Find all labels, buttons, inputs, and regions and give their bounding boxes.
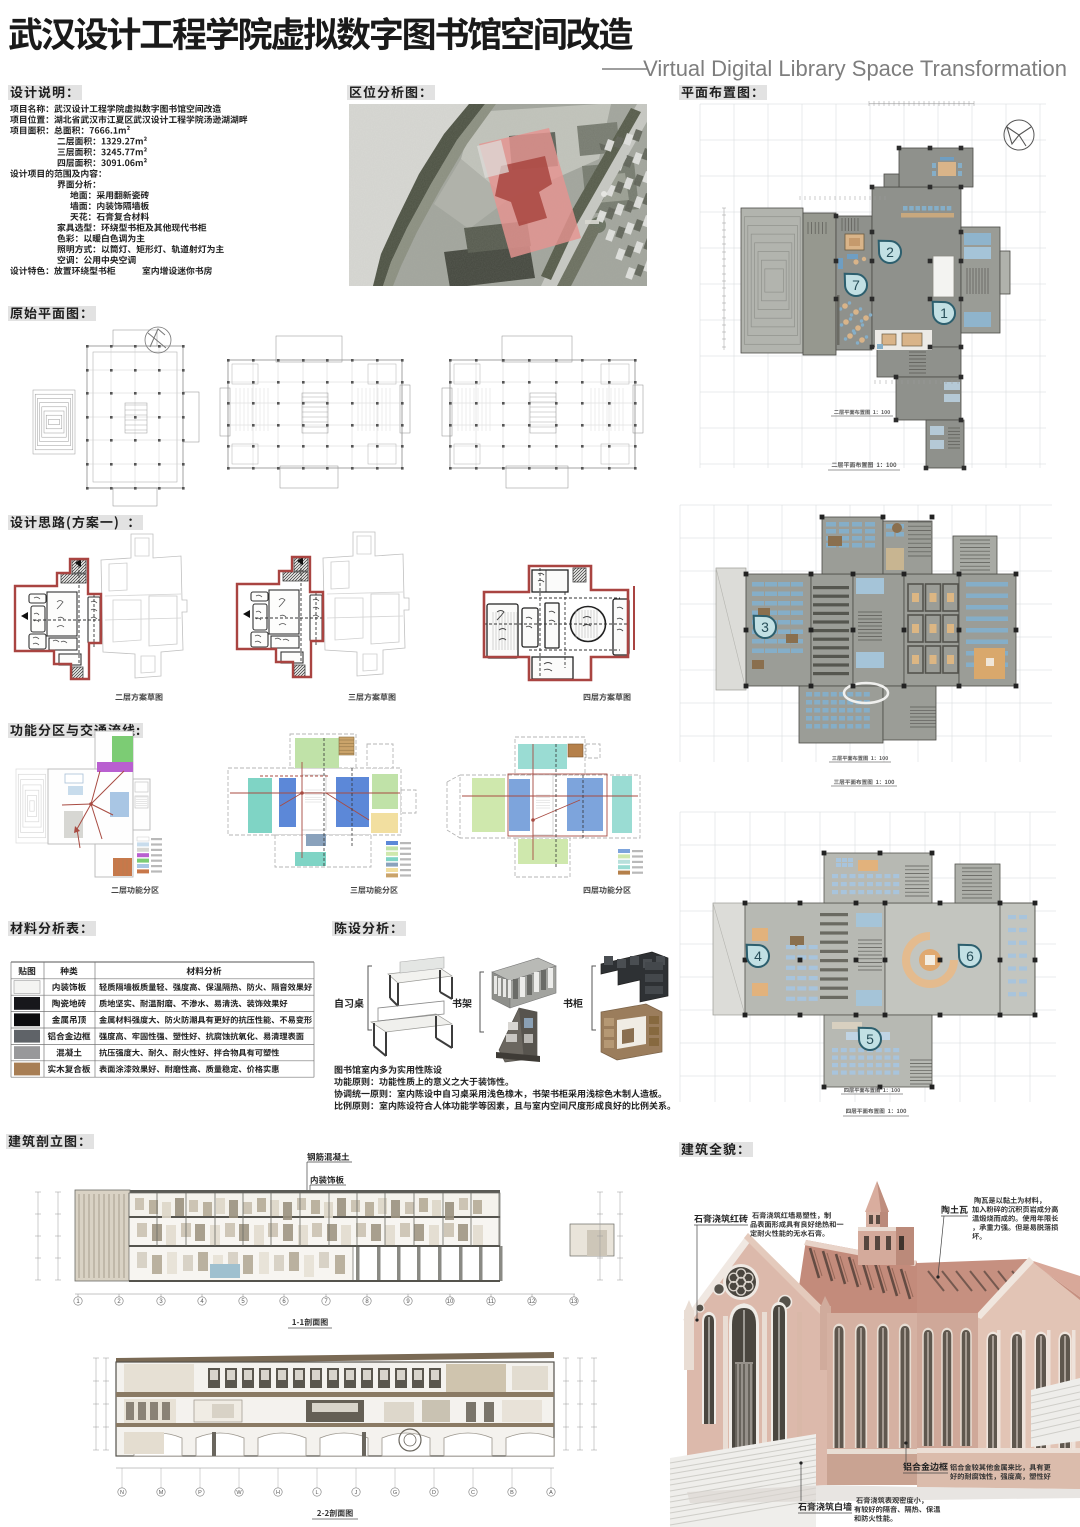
svg-text:B: B [510, 1490, 514, 1496]
svg-text:8: 8 [365, 1299, 369, 1305]
svg-text:3: 3 [761, 619, 769, 635]
svg-text:P: P [198, 1490, 202, 1496]
svg-text:M: M [159, 1490, 164, 1496]
svg-text:2: 2 [886, 244, 894, 260]
svg-text:6: 6 [966, 948, 974, 964]
svg-text:G: G [393, 1490, 397, 1496]
svg-text:9: 9 [406, 1299, 410, 1305]
svg-text:H: H [276, 1490, 280, 1496]
svg-text:2: 2 [117, 1299, 121, 1305]
svg-text:N: N [120, 1490, 124, 1496]
svg-text:7: 7 [324, 1299, 328, 1305]
svg-text:12: 12 [529, 1299, 536, 1305]
svg-text:L: L [315, 1490, 318, 1496]
svg-text:C: C [471, 1490, 475, 1496]
svg-text:Virtual Digital Library Space: Virtual Digital Library Space Transforma… [643, 56, 1067, 81]
svg-text:J: J [355, 1490, 358, 1496]
svg-text:10: 10 [447, 1299, 454, 1305]
svg-text:7: 7 [852, 277, 860, 293]
svg-text:A: A [549, 1490, 553, 1496]
svg-text:13: 13 [571, 1299, 578, 1305]
svg-text:3: 3 [159, 1299, 163, 1305]
svg-text:11: 11 [488, 1299, 495, 1305]
svg-text:5: 5 [241, 1299, 245, 1305]
svg-text:6: 6 [282, 1299, 286, 1305]
svg-text:5: 5 [866, 1031, 874, 1047]
svg-text:1: 1 [76, 1299, 80, 1305]
svg-text:4: 4 [754, 948, 762, 964]
svg-text:W: W [236, 1490, 242, 1496]
svg-text:4: 4 [200, 1299, 204, 1305]
svg-text:D: D [432, 1490, 436, 1496]
svg-text:1: 1 [940, 305, 948, 321]
